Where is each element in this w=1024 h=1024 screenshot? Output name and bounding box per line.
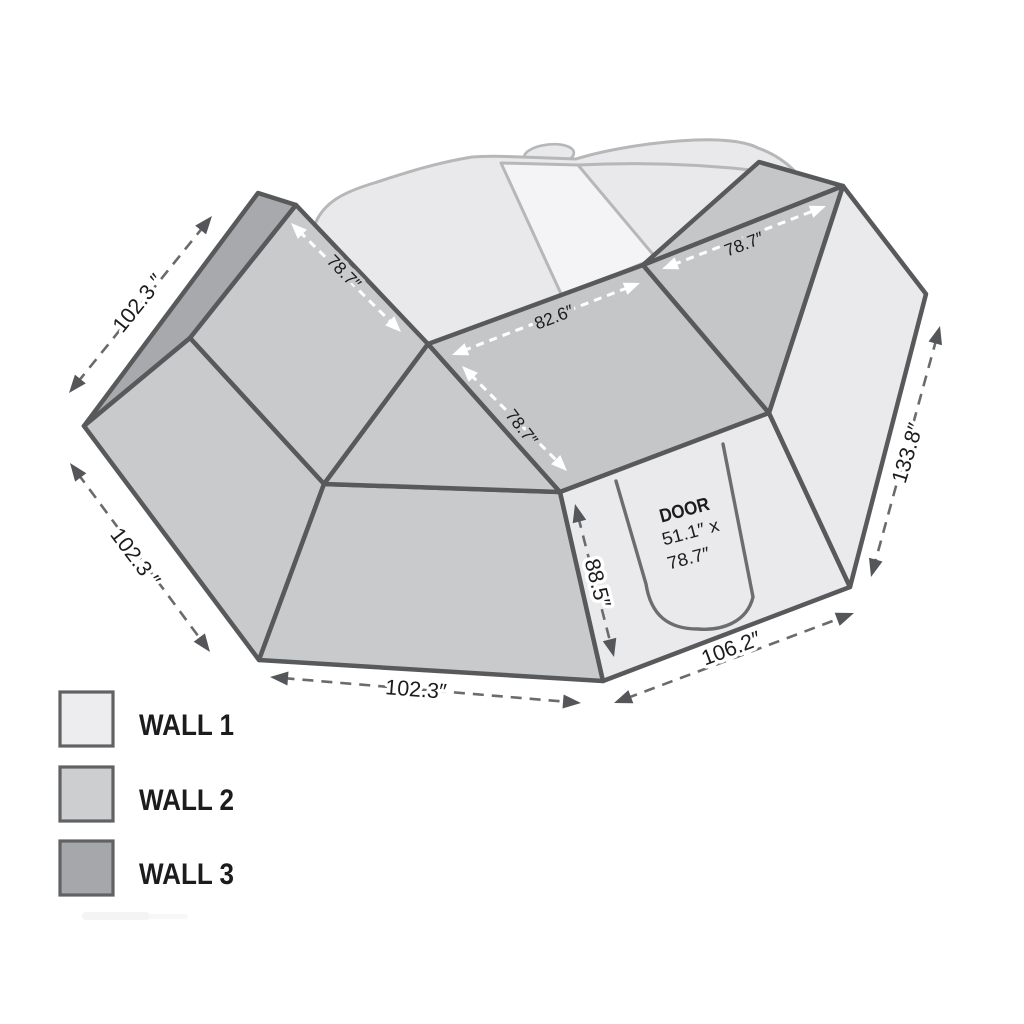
svg-text:WALL 2: WALL 2 (139, 784, 234, 817)
svg-text:WALL 1: WALL 1 (139, 709, 234, 742)
svg-text:102.3″: 102.3″ (384, 675, 447, 704)
svg-text:WALL 3: WALL 3 (139, 858, 234, 891)
